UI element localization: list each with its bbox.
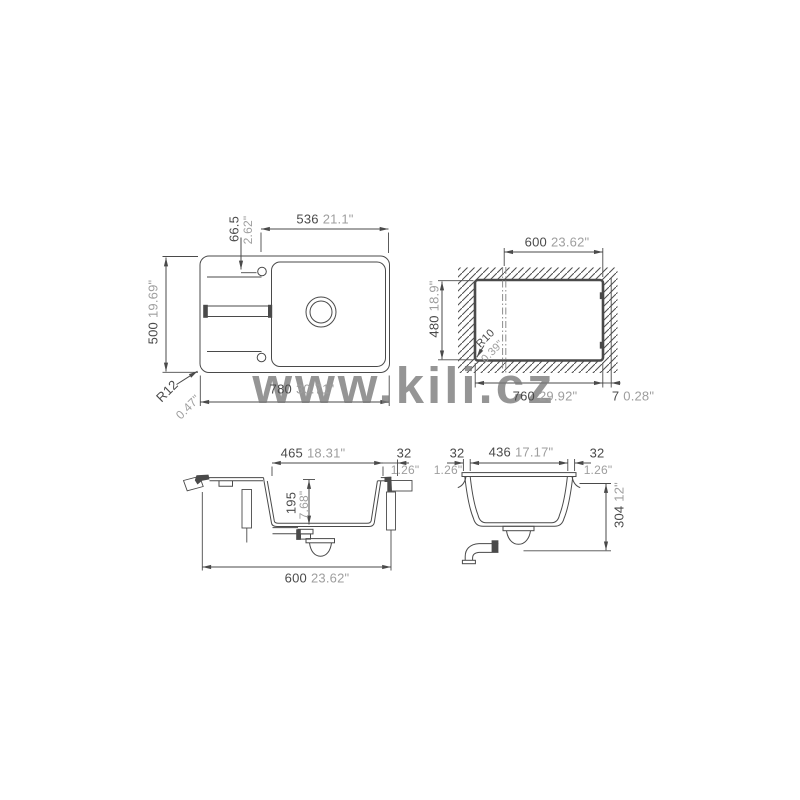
cabinet-panel-left bbox=[242, 490, 252, 529]
dim-side-rim-mm: 32 bbox=[397, 447, 412, 460]
cabinet-panel-right bbox=[387, 492, 396, 530]
countertop-block-right bbox=[389, 481, 412, 492]
dim-cutout-depth: 48018.9" bbox=[428, 280, 441, 337]
drain-plumbing-side bbox=[273, 528, 335, 557]
dim-cutout-top-width: 60023.62" bbox=[525, 236, 590, 249]
mounting-clip bbox=[600, 342, 603, 349]
dim-front-rim-right-mm: 32 bbox=[590, 447, 605, 460]
rim-front bbox=[462, 473, 576, 477]
dim-front-rim-left-inch: 1.26" bbox=[434, 464, 463, 476]
dim-front-rim-right-inch: 1.26" bbox=[584, 464, 613, 476]
dim-cutout-edge-gap: 70.28" bbox=[612, 390, 654, 403]
faucet-hole-top bbox=[258, 267, 267, 276]
trap-outlet-flange bbox=[462, 560, 475, 563]
dim-side-cabinet-width: 60023.62" bbox=[285, 572, 350, 585]
drainboard-channel-section bbox=[219, 481, 233, 487]
dim-side-bowl-length: 46518.31" bbox=[281, 447, 346, 460]
drain-circle bbox=[306, 297, 336, 327]
dim-top-faucet-inset-mm: 66.5 bbox=[228, 216, 241, 242]
dim-top-width: 78030.71" bbox=[270, 383, 335, 396]
bowl-outline bbox=[272, 262, 386, 367]
mounting-clip bbox=[600, 292, 603, 299]
dim-front-rim-left-mm: 32 bbox=[450, 447, 465, 460]
rim-hook-right bbox=[385, 477, 393, 492]
bowl-profile-front bbox=[458, 473, 580, 527]
dim-front-bowl-width: 43617.17" bbox=[489, 446, 554, 459]
product-dimension-diagram: www.kili.cz 53621.1" 66.5 2.62" 50019.69… bbox=[0, 0, 800, 800]
dim-top-faucet-offset: 53621.1" bbox=[296, 213, 353, 226]
dim-side-rim-inch: 1.26" bbox=[391, 464, 420, 476]
dim-side-bowl-depth-mm: 195 bbox=[285, 492, 298, 514]
dim-top-faucet-inset-inch: 2.62" bbox=[242, 216, 254, 245]
drainboard-grooves bbox=[203, 277, 272, 352]
drain-plumbing-front bbox=[462, 526, 534, 563]
dim-cutout-width: 76029.92" bbox=[513, 390, 578, 403]
dim-top-depth: 50019.69" bbox=[147, 280, 160, 345]
dim-front-total-depth: 30412" bbox=[613, 482, 626, 528]
dim-side-bowl-depth-inch: 7.68" bbox=[298, 491, 310, 520]
